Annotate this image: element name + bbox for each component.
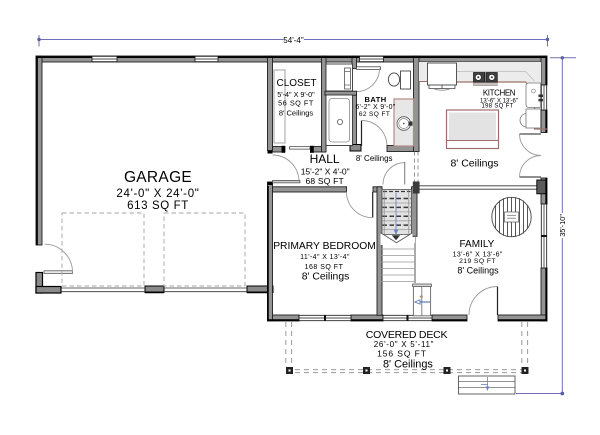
svg-text:198 SQ FT: 198 SQ FT — [481, 104, 513, 110]
svg-text:FAMILY: FAMILY — [459, 239, 494, 250]
svg-text:15'-2" X 4'-0": 15'-2" X 4'-0" — [301, 166, 350, 176]
svg-text:8' Ceilings: 8' Ceilings — [356, 154, 393, 163]
svg-text:HALL: HALL — [310, 152, 340, 166]
svg-text:54'-4": 54'-4" — [283, 36, 304, 45]
svg-text:56 SQ FT: 56 SQ FT — [278, 98, 314, 107]
svg-text:BATH: BATH — [364, 95, 386, 104]
svg-text:35'-10": 35'-10" — [558, 214, 567, 237]
svg-text:8' Ceilings: 8' Ceilings — [383, 359, 433, 371]
svg-text:8' Ceilings: 8' Ceilings — [450, 158, 498, 170]
svg-text:613 SQ FT: 613 SQ FT — [127, 200, 189, 212]
svg-text:219 SQ FT: 219 SQ FT — [459, 258, 496, 265]
svg-text:8' Ceilings: 8' Ceilings — [457, 266, 499, 276]
svg-text:24'-0" X 24'-0": 24'-0" X 24'-0" — [116, 188, 199, 200]
svg-text:6'-2" X 9'-0": 6'-2" X 9'-0" — [355, 104, 396, 111]
svg-text:KITCHEN: KITCHEN — [483, 89, 516, 98]
svg-text:8' Ceilings: 8' Ceilings — [279, 108, 314, 117]
svg-text:168 SQ FT: 168 SQ FT — [305, 264, 344, 271]
svg-text:GARAGE: GARAGE — [124, 169, 192, 186]
svg-text:8' Ceilings: 8' Ceilings — [302, 271, 350, 282]
svg-text:11'-4" X 13'-4": 11'-4" X 13'-4" — [300, 254, 350, 261]
svg-text:156 SQ FT: 156 SQ FT — [377, 349, 427, 359]
svg-text:CLOSET: CLOSET — [276, 78, 316, 89]
svg-text:PRIMARY BEDROOM: PRIMARY BEDROOM — [273, 241, 376, 252]
svg-text:62 SQ FT: 62 SQ FT — [359, 111, 390, 118]
svg-text:68 SQ FT: 68 SQ FT — [305, 176, 343, 186]
svg-text:COVERED DECK: COVERED DECK — [366, 329, 448, 341]
